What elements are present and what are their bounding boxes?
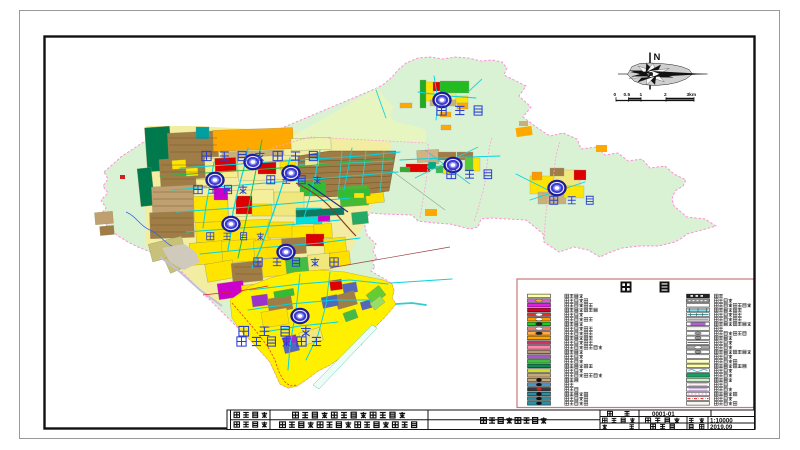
- svg-text:N: N: [654, 52, 661, 63]
- svg-text:0.5: 0.5: [624, 92, 631, 98]
- svg-text:3km: 3km: [687, 92, 697, 98]
- svg-text:0: 0: [614, 92, 617, 98]
- svg-text:0001-01: 0001-01: [652, 411, 675, 418]
- svg-text:1: 1: [640, 92, 643, 98]
- svg-text:2: 2: [664, 92, 667, 98]
- svg-text:2019.09: 2019.09: [710, 424, 733, 431]
